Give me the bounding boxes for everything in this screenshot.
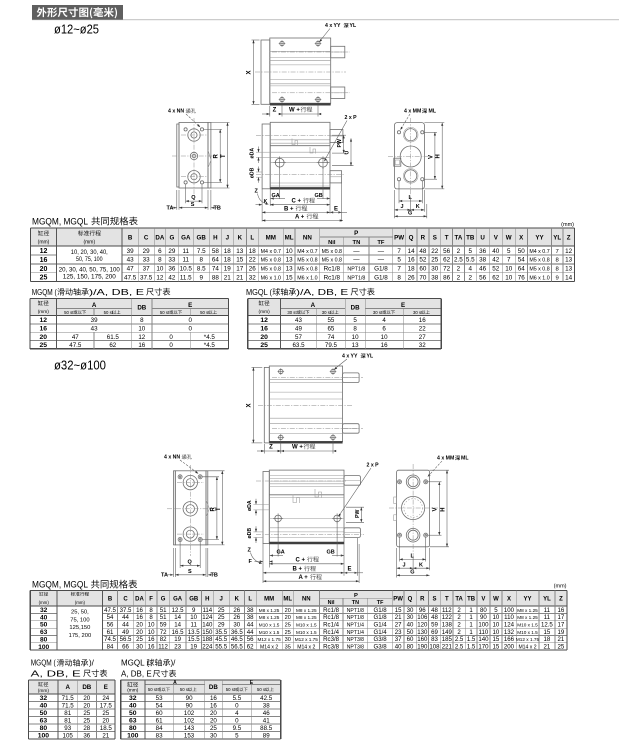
svg-text:)/A, DB, E: )/A, DB, E xyxy=(296,288,348,297)
svg-text:51: 51 xyxy=(160,614,167,621)
svg-text:M14 x 2: M14 x 2 xyxy=(260,645,278,651)
svg-text:12: 12 xyxy=(156,274,164,281)
svg-text:L: L xyxy=(411,553,415,559)
svg-text:J: J xyxy=(220,596,223,602)
svg-text:50 st: 50 st xyxy=(180,687,190,692)
svg-text:TA: TA xyxy=(167,206,174,212)
svg-text:30: 30 xyxy=(285,637,291,643)
svg-text:11: 11 xyxy=(183,248,190,255)
svg-text:TA: TA xyxy=(455,596,463,602)
svg-text:S: S xyxy=(432,596,436,602)
svg-text:4: 4 xyxy=(382,317,386,324)
svg-text:G: G xyxy=(410,569,414,575)
svg-text:6: 6 xyxy=(158,248,162,255)
svg-text:24: 24 xyxy=(102,695,109,702)
svg-text:96: 96 xyxy=(419,607,426,614)
svg-text:90: 90 xyxy=(186,695,193,702)
svg-text:17: 17 xyxy=(558,614,565,621)
svg-text:18: 18 xyxy=(224,248,232,255)
svg-text:B: B xyxy=(108,596,113,602)
svg-text:50: 50 xyxy=(40,622,48,629)
svg-text:30: 30 xyxy=(431,266,439,273)
svg-text:4 x MM: 4 x MM xyxy=(404,109,421,115)
svg-text:21: 21 xyxy=(395,614,402,621)
svg-text:TB: TB xyxy=(467,596,476,602)
svg-text:)/A, DB, E: )/A, DB, E xyxy=(89,288,144,297)
svg-text:43: 43 xyxy=(127,257,135,264)
svg-text:63: 63 xyxy=(40,629,48,636)
svg-text:M10 x 1.5: M10 x 1.5 xyxy=(517,630,538,635)
svg-text:47.5: 47.5 xyxy=(124,274,137,281)
svg-text:63: 63 xyxy=(40,718,48,725)
svg-text:89: 89 xyxy=(263,733,270,740)
svg-text:M10 x 1.5: M10 x 1.5 xyxy=(259,623,280,628)
svg-text:X: X xyxy=(246,403,252,407)
svg-text:G1/8: G1/8 xyxy=(373,607,387,614)
svg-text:30 st: 30 st xyxy=(373,310,383,315)
svg-text:A: A xyxy=(65,684,70,691)
svg-text:M8 x 1.25: M8 x 1.25 xyxy=(517,608,538,613)
svg-text:K: K xyxy=(416,204,420,210)
svg-text:160: 160 xyxy=(417,636,428,643)
svg-text:166: 166 xyxy=(504,636,515,643)
svg-text:1.5: 1.5 xyxy=(467,636,476,643)
svg-text:81: 81 xyxy=(64,710,71,717)
svg-text:M10 x 1.5: M10 x 1.5 xyxy=(259,630,280,635)
svg-text:(mm): (mm) xyxy=(38,309,50,315)
svg-text:32: 32 xyxy=(40,695,48,702)
svg-text:M5 x 0.8: M5 x 0.8 xyxy=(322,249,342,255)
svg-text:Z: Z xyxy=(559,596,563,602)
svg-text:(mm): (mm) xyxy=(127,688,139,694)
svg-text:55: 55 xyxy=(327,317,334,324)
svg-text:—: — xyxy=(353,248,360,255)
svg-text:12: 12 xyxy=(40,317,48,324)
svg-text:10: 10 xyxy=(381,334,388,341)
svg-text:M6 x 1.0: M6 x 1.0 xyxy=(529,275,549,281)
svg-text:64: 64 xyxy=(518,266,526,273)
svg-text:40: 40 xyxy=(407,622,414,629)
svg-text:39: 39 xyxy=(127,248,135,255)
svg-text:YL: YL xyxy=(350,23,357,29)
svg-text:57: 57 xyxy=(295,334,302,341)
svg-text:M5 x 0.8: M5 x 0.8 xyxy=(261,267,281,273)
svg-text:—: — xyxy=(353,257,360,264)
svg-text:M4 x 0.7: M4 x 0.7 xyxy=(297,249,317,255)
svg-text:NPT1/4: NPT1/4 xyxy=(347,623,364,629)
svg-text:20: 20 xyxy=(210,718,217,725)
svg-text:74: 74 xyxy=(212,266,220,273)
svg-text:102: 102 xyxy=(184,710,195,717)
svg-text:40: 40 xyxy=(129,703,137,710)
svg-text:V: V xyxy=(433,507,439,511)
svg-text:40: 40 xyxy=(395,644,402,651)
svg-text:MGQM (: MGQM ( xyxy=(32,288,57,297)
svg-text:20: 20 xyxy=(40,334,48,341)
svg-text:100: 100 xyxy=(127,733,139,740)
svg-text:102: 102 xyxy=(184,718,195,725)
svg-text:W +: W + xyxy=(292,445,303,451)
svg-text:1: 1 xyxy=(469,607,473,614)
svg-text:62: 62 xyxy=(247,644,254,651)
svg-text:16.5: 16.5 xyxy=(172,629,184,636)
svg-text:18: 18 xyxy=(544,636,551,643)
svg-text:20: 20 xyxy=(83,695,90,702)
svg-text:YY: YY xyxy=(535,234,544,241)
svg-text:69: 69 xyxy=(431,629,438,636)
svg-text:15: 15 xyxy=(395,607,402,614)
svg-text:2: 2 xyxy=(457,614,461,621)
svg-text:20: 20 xyxy=(102,718,109,725)
svg-text:43: 43 xyxy=(295,317,302,324)
svg-text:Q: Q xyxy=(191,195,196,201)
svg-text:200: 200 xyxy=(504,644,515,651)
svg-text:5: 5 xyxy=(494,607,498,614)
svg-text:2.5: 2.5 xyxy=(455,636,464,643)
svg-text:60: 60 xyxy=(419,266,427,273)
svg-text:9.5: 9.5 xyxy=(233,725,242,732)
svg-text:26: 26 xyxy=(249,266,257,273)
svg-text:47.5: 47.5 xyxy=(104,607,116,614)
svg-text:18.5: 18.5 xyxy=(100,725,113,732)
svg-text:10: 10 xyxy=(190,614,197,621)
svg-text:46: 46 xyxy=(479,266,487,273)
svg-text:TF: TF xyxy=(377,600,384,606)
svg-text:38: 38 xyxy=(263,703,270,710)
svg-text:Rc1/8: Rc1/8 xyxy=(323,614,340,621)
svg-text:13: 13 xyxy=(236,248,244,255)
svg-text:61: 61 xyxy=(107,629,114,636)
svg-text:(mm): (mm) xyxy=(561,222,574,228)
svg-text:W: W xyxy=(493,596,499,602)
svg-text:A, DB, E: A, DB, E xyxy=(121,670,152,679)
svg-text:F: F xyxy=(249,559,253,565)
svg-text:MGQL (: MGQL ( xyxy=(121,659,149,668)
svg-text:54: 54 xyxy=(156,703,163,710)
svg-text:11: 11 xyxy=(183,257,190,264)
svg-text:0: 0 xyxy=(169,342,173,349)
svg-text:14: 14 xyxy=(565,274,573,281)
svg-text:10: 10 xyxy=(493,614,500,621)
svg-text:2.5: 2.5 xyxy=(454,257,463,264)
svg-text:25: 25 xyxy=(285,623,291,629)
svg-text:50 st: 50 st xyxy=(257,687,267,692)
svg-text:80: 80 xyxy=(40,725,48,732)
svg-text:188: 188 xyxy=(202,636,213,643)
svg-text:50 st: 50 st xyxy=(104,310,114,315)
svg-text:)/: )/ xyxy=(89,659,95,668)
svg-text:80: 80 xyxy=(407,644,414,651)
svg-text:DB: DB xyxy=(351,304,360,311)
svg-text:L: L xyxy=(250,234,254,241)
svg-text:84: 84 xyxy=(107,644,114,651)
svg-text:79.5: 79.5 xyxy=(325,342,338,349)
svg-text:NPT1/8: NPT1/8 xyxy=(347,615,364,621)
svg-text:TN: TN xyxy=(353,240,361,246)
svg-text:26: 26 xyxy=(233,614,240,621)
svg-text:42.5: 42.5 xyxy=(260,695,273,702)
svg-text:X: X xyxy=(247,70,253,74)
svg-text:—: — xyxy=(378,248,385,255)
svg-text:140: 140 xyxy=(478,636,489,643)
svg-text:16: 16 xyxy=(408,257,416,264)
svg-text:G1/8: G1/8 xyxy=(374,266,388,273)
svg-text:52: 52 xyxy=(419,257,427,264)
svg-text:1: 1 xyxy=(469,622,473,629)
svg-text:54: 54 xyxy=(518,257,526,264)
svg-text:B: B xyxy=(128,234,133,241)
svg-text:12.5: 12.5 xyxy=(541,622,553,629)
svg-text:C: C xyxy=(144,234,149,241)
svg-text:Rc1/8: Rc1/8 xyxy=(324,274,341,281)
svg-text:25: 25 xyxy=(285,630,291,636)
svg-text:T: T xyxy=(445,234,449,241)
svg-text:18: 18 xyxy=(249,248,257,255)
svg-text:37: 37 xyxy=(395,636,402,643)
svg-text:83: 83 xyxy=(156,733,163,740)
svg-text:60: 60 xyxy=(156,710,163,717)
svg-text:8: 8 xyxy=(140,317,144,324)
svg-text:35.5: 35.5 xyxy=(215,629,227,636)
svg-text:16: 16 xyxy=(558,607,565,614)
svg-text:30: 30 xyxy=(407,614,414,621)
svg-text:4: 4 xyxy=(235,710,239,717)
svg-text:25: 25 xyxy=(210,725,217,732)
svg-text:Q: Q xyxy=(188,560,193,566)
svg-text:C +: C + xyxy=(296,557,306,563)
svg-text:Nil: Nil xyxy=(328,240,336,246)
svg-text:19: 19 xyxy=(190,644,197,651)
svg-text:TB: TB xyxy=(211,573,218,579)
svg-text:2: 2 xyxy=(457,622,461,629)
svg-text:63: 63 xyxy=(129,718,137,725)
svg-text:16: 16 xyxy=(40,325,48,332)
svg-text:Rc1/8: Rc1/8 xyxy=(323,607,340,614)
svg-text:16: 16 xyxy=(210,695,217,702)
svg-text:16: 16 xyxy=(136,614,143,621)
svg-text:GB: GB xyxy=(315,193,323,199)
svg-text:E: E xyxy=(401,302,405,309)
svg-text:K: K xyxy=(264,199,268,205)
svg-text:185: 185 xyxy=(442,636,453,643)
svg-text:10: 10 xyxy=(286,248,294,255)
svg-text:5.5: 5.5 xyxy=(233,695,242,702)
svg-text:50: 50 xyxy=(407,629,414,636)
svg-text:NPT1/8: NPT1/8 xyxy=(347,608,364,614)
svg-text:15.5: 15.5 xyxy=(188,636,200,643)
svg-text:50 st: 50 st xyxy=(226,687,236,692)
svg-text:M14 x 2: M14 x 2 xyxy=(518,645,536,651)
svg-text:B +: B + xyxy=(293,567,303,573)
svg-text:20, 30, 40, 50, 75, 100: 20, 30, 40, 50, 75, 100 xyxy=(59,268,121,274)
svg-text:PW: PW xyxy=(355,510,361,518)
svg-text:5: 5 xyxy=(235,733,239,740)
svg-text:Q: Q xyxy=(409,234,414,241)
svg-text:E: E xyxy=(188,302,192,309)
svg-text:36.5: 36.5 xyxy=(231,629,243,636)
svg-text:PW: PW xyxy=(337,139,343,147)
svg-text:11: 11 xyxy=(191,622,198,629)
svg-text:2: 2 xyxy=(457,266,461,273)
svg-text:0: 0 xyxy=(188,325,192,332)
svg-text:S: S xyxy=(191,202,195,208)
svg-text:10, 20, 30, 40,: 10, 20, 30, 40, xyxy=(71,250,108,256)
svg-text:1: 1 xyxy=(469,629,473,636)
svg-text:38: 38 xyxy=(479,257,487,264)
svg-text:M6 x 1.0: M6 x 1.0 xyxy=(297,275,317,281)
svg-text:NPT3/8: NPT3/8 xyxy=(347,645,364,651)
svg-text:25, 50,: 25, 50, xyxy=(71,610,89,616)
svg-text:25: 25 xyxy=(218,607,225,614)
svg-text:23: 23 xyxy=(395,629,402,636)
svg-text:10: 10 xyxy=(156,266,164,273)
svg-text:21: 21 xyxy=(102,733,109,740)
svg-text:13: 13 xyxy=(286,266,294,273)
svg-text:17: 17 xyxy=(558,622,565,629)
svg-text:80: 80 xyxy=(480,607,487,614)
svg-text:25: 25 xyxy=(40,275,48,282)
svg-text:øDA: øDA xyxy=(250,148,256,159)
svg-text:20: 20 xyxy=(83,703,90,710)
svg-text:V: V xyxy=(428,155,434,159)
svg-text:7: 7 xyxy=(556,249,559,255)
svg-text:40: 40 xyxy=(492,248,500,255)
svg-text:5: 5 xyxy=(353,317,357,324)
svg-text:84: 84 xyxy=(156,725,163,732)
svg-text:(mm): (mm) xyxy=(259,309,271,315)
svg-text:83: 83 xyxy=(431,636,438,643)
svg-text:59: 59 xyxy=(160,622,167,629)
svg-text:ML: ML xyxy=(283,596,292,602)
svg-text:10: 10 xyxy=(138,325,145,332)
svg-text:R: R xyxy=(421,234,426,241)
svg-text:GB: GB xyxy=(327,550,335,556)
svg-text:41: 41 xyxy=(263,718,270,725)
svg-text:81: 81 xyxy=(64,718,71,725)
svg-text:9: 9 xyxy=(192,607,196,614)
svg-text:56.5: 56.5 xyxy=(231,644,243,651)
svg-text:MGQM (: MGQM ( xyxy=(31,659,56,668)
svg-text:59: 59 xyxy=(431,622,438,629)
svg-text:36: 36 xyxy=(168,266,176,273)
svg-text:K: K xyxy=(235,596,240,602)
svg-text:44: 44 xyxy=(247,629,254,636)
svg-text:DB: DB xyxy=(82,684,91,691)
svg-text:(mm): (mm) xyxy=(38,240,50,246)
svg-text:2: 2 xyxy=(468,274,472,281)
svg-text:10: 10 xyxy=(505,266,513,273)
svg-text:6: 6 xyxy=(382,325,386,332)
svg-text:124: 124 xyxy=(504,622,515,629)
svg-text:E: E xyxy=(348,567,352,573)
svg-text:108: 108 xyxy=(429,644,440,651)
svg-text:J: J xyxy=(403,562,406,568)
svg-text:15: 15 xyxy=(493,644,500,651)
svg-text:12: 12 xyxy=(565,248,573,255)
svg-text:12.5: 12.5 xyxy=(172,607,184,614)
svg-text:ø12~ø25: ø12~ø25 xyxy=(54,23,99,37)
svg-text:221: 221 xyxy=(442,644,453,651)
svg-text:Z: Z xyxy=(248,548,252,554)
svg-text:15: 15 xyxy=(544,629,551,636)
svg-text:27: 27 xyxy=(395,622,402,629)
svg-text:71.5: 71.5 xyxy=(62,695,75,702)
svg-text:4 x NN: 4 x NN xyxy=(164,455,180,461)
svg-text:A, DB, E: A, DB, E xyxy=(31,669,81,678)
svg-text:40: 40 xyxy=(40,703,48,710)
svg-text:30 st: 30 st xyxy=(287,310,297,315)
svg-text:PW: PW xyxy=(393,596,403,602)
svg-text:21: 21 xyxy=(558,636,565,643)
svg-text:30 st: 30 st xyxy=(322,310,332,315)
svg-text:15: 15 xyxy=(286,274,294,281)
svg-text:M5 x 0.8: M5 x 0.8 xyxy=(297,267,317,273)
svg-text:20: 20 xyxy=(285,615,291,621)
svg-text:42: 42 xyxy=(492,257,500,264)
svg-text:75, 100: 75, 100 xyxy=(70,617,89,623)
svg-text:47: 47 xyxy=(72,334,79,341)
svg-text:M10 x 1.5: M10 x 1.5 xyxy=(296,623,317,628)
svg-text:TN: TN xyxy=(352,600,359,606)
svg-text:A: A xyxy=(311,302,316,309)
svg-text:4: 4 xyxy=(468,266,472,273)
svg-text:80: 80 xyxy=(129,725,137,732)
svg-text:33: 33 xyxy=(168,257,176,264)
svg-text:70: 70 xyxy=(419,274,427,281)
svg-text:F: F xyxy=(149,596,153,602)
svg-text:M12 x 1.75: M12 x 1.75 xyxy=(257,637,281,642)
svg-text:20: 20 xyxy=(285,608,291,614)
svg-text:E: E xyxy=(104,684,108,691)
svg-text:21: 21 xyxy=(236,274,244,281)
svg-text:16: 16 xyxy=(260,325,268,332)
svg-text:40: 40 xyxy=(40,614,48,621)
svg-text:7.5: 7.5 xyxy=(197,248,206,255)
svg-text:120: 120 xyxy=(417,622,428,629)
svg-text:GB: GB xyxy=(197,234,207,241)
svg-text:10: 10 xyxy=(505,274,513,281)
svg-text:30: 30 xyxy=(233,622,240,629)
svg-text:54: 54 xyxy=(107,614,114,621)
svg-text:20: 20 xyxy=(136,629,143,636)
svg-text:62: 62 xyxy=(109,342,116,349)
svg-text:114: 114 xyxy=(202,607,212,614)
svg-text:8: 8 xyxy=(149,607,153,614)
svg-text:132: 132 xyxy=(504,629,515,636)
svg-text:35: 35 xyxy=(285,645,291,651)
svg-text:10: 10 xyxy=(148,629,155,636)
svg-text:ML: ML xyxy=(285,234,294,241)
svg-text:33: 33 xyxy=(143,257,151,264)
svg-text:Rc3/8: Rc3/8 xyxy=(323,644,340,651)
svg-text:Q: Q xyxy=(408,596,413,602)
svg-text:12: 12 xyxy=(138,334,145,341)
svg-text:4 x YY: 4 x YY xyxy=(325,23,341,29)
svg-text:T: T xyxy=(216,507,222,511)
svg-text:175, 200: 175, 200 xyxy=(69,633,92,639)
svg-text:74.5: 74.5 xyxy=(104,636,116,643)
svg-text:32: 32 xyxy=(129,695,137,702)
svg-text:M14 x 2: M14 x 2 xyxy=(297,645,315,651)
svg-text:29: 29 xyxy=(218,622,225,629)
svg-text:8: 8 xyxy=(556,267,560,273)
svg-text:125,150: 125,150 xyxy=(69,625,90,631)
svg-text:25: 25 xyxy=(83,718,90,725)
svg-text:G1/4: G1/4 xyxy=(373,629,387,636)
svg-text:72: 72 xyxy=(443,266,451,273)
svg-text:NPT3/8: NPT3/8 xyxy=(347,637,364,643)
svg-text:90: 90 xyxy=(186,703,193,710)
